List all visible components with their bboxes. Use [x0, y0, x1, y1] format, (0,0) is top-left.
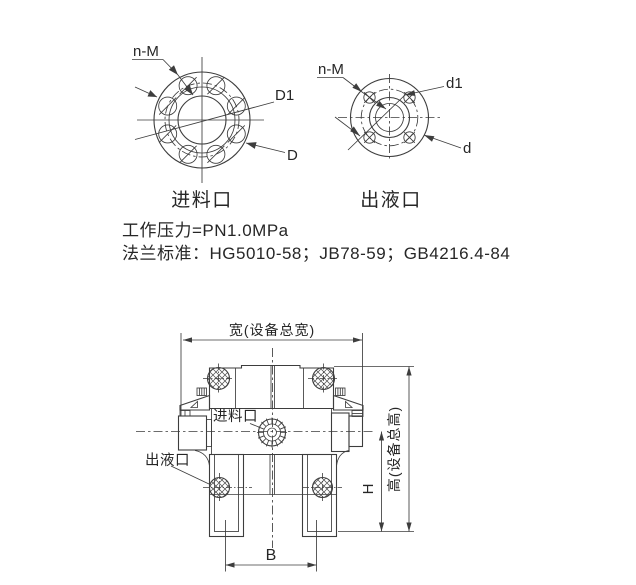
- shell-fillet-right: [337, 451, 349, 467]
- inlet-caption: 进料口: [171, 189, 233, 211]
- arrowhead: [183, 337, 192, 342]
- leader-line: [348, 87, 444, 151]
- inlet-flange-spokes: [257, 418, 287, 448]
- total-height-dim-label: 高(设备总高): [386, 406, 402, 492]
- b-dim-label: B: [266, 547, 277, 564]
- working-pressure-note: 工作压力=PN1.0MPa: [122, 221, 289, 240]
- bolt-spec-label: n-M: [133, 43, 159, 60]
- trunnion-left: [179, 416, 207, 450]
- fitting-ribs: [338, 388, 343, 396]
- gusset-hole: [346, 402, 353, 408]
- arrowhead: [353, 337, 362, 342]
- trunnion-right-neck: [332, 413, 350, 452]
- bolt-spec-label: n-M: [318, 61, 344, 78]
- outlet-caption: 出液口: [360, 189, 422, 211]
- inlet-flange-ring: [264, 424, 281, 441]
- bolt-circle-dia-label: d1: [446, 75, 463, 92]
- equipment-side-view: 宽(设备总宽): [136, 322, 414, 572]
- leader-line: [171, 466, 209, 484]
- arrowhead: [379, 523, 384, 532]
- top-cover-seams: [236, 366, 304, 409]
- width-dim-label: 宽(设备总宽): [229, 322, 315, 338]
- drawing-canvas: n-M D1 D 进料口 n-M d1: [0, 0, 636, 585]
- arrowhead: [352, 83, 362, 92]
- arrowhead: [246, 142, 257, 149]
- inlet-port-label: 进料口: [213, 408, 258, 425]
- gusset-hole: [191, 402, 198, 408]
- trunnion-left-neck: [207, 420, 212, 447]
- arrowhead: [424, 135, 434, 142]
- spec-notes: 工作压力=PN1.0MPa 法兰标准：HG5010-58；JB78-59；GB4…: [122, 221, 510, 263]
- arrowhead: [184, 85, 193, 95]
- outlet-flange-view: n-M d1 d 出液口: [317, 61, 471, 211]
- inlet-flange-bore: [268, 428, 277, 437]
- h-dim-label: H: [360, 484, 377, 495]
- outer-dia-label: d: [463, 140, 471, 157]
- fitting-ribs: [199, 388, 204, 396]
- arrowhead: [226, 562, 235, 567]
- shell-fillet-left: [195, 451, 210, 467]
- arrowhead: [406, 367, 411, 376]
- inlet-flange-view: n-M D1 D 进料口: [132, 43, 298, 211]
- arrowhead: [406, 523, 411, 532]
- technical-drawing-page: n-M D1 D 进料口 n-M d1: [0, 0, 636, 585]
- flange-standard-note: 法兰标准：HG5010-58；JB78-59；GB4216.4-84: [122, 244, 510, 263]
- bolt-circle-dia-label: D1: [275, 87, 294, 104]
- outlet-port-label: 出液口: [145, 452, 190, 469]
- outer-dia-label: D: [287, 147, 298, 164]
- arrowhead: [148, 90, 158, 97]
- arrowhead: [308, 562, 317, 567]
- arrowhead: [379, 432, 384, 441]
